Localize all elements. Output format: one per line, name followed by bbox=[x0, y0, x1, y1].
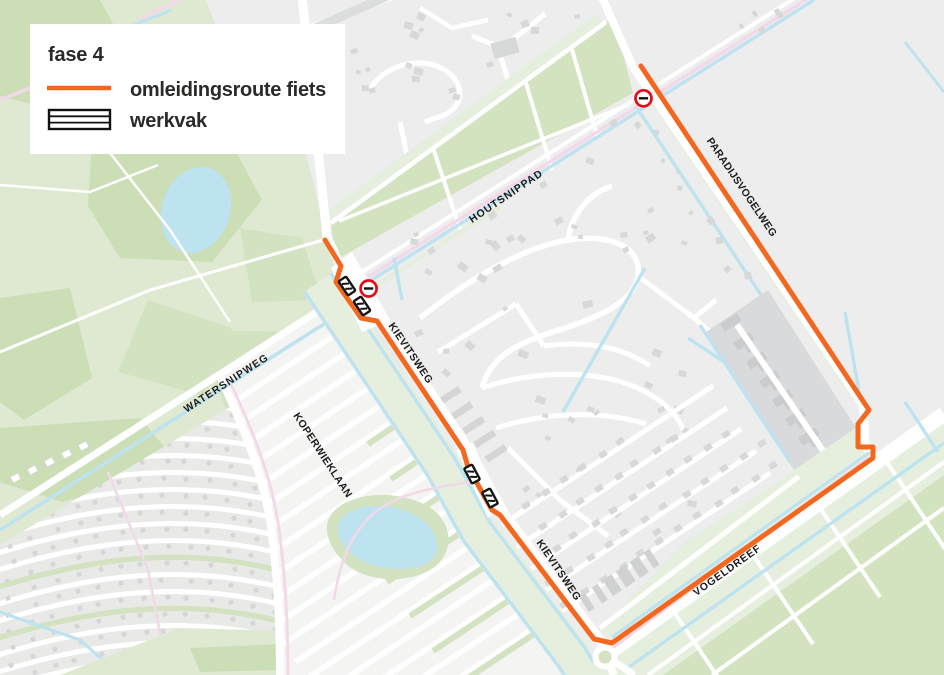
svg-text:werkvak: werkvak bbox=[129, 110, 208, 132]
svg-text:omleidingsroute fiets: omleidingsroute fiets bbox=[130, 79, 326, 101]
svg-text:fase 4: fase 4 bbox=[48, 44, 105, 66]
